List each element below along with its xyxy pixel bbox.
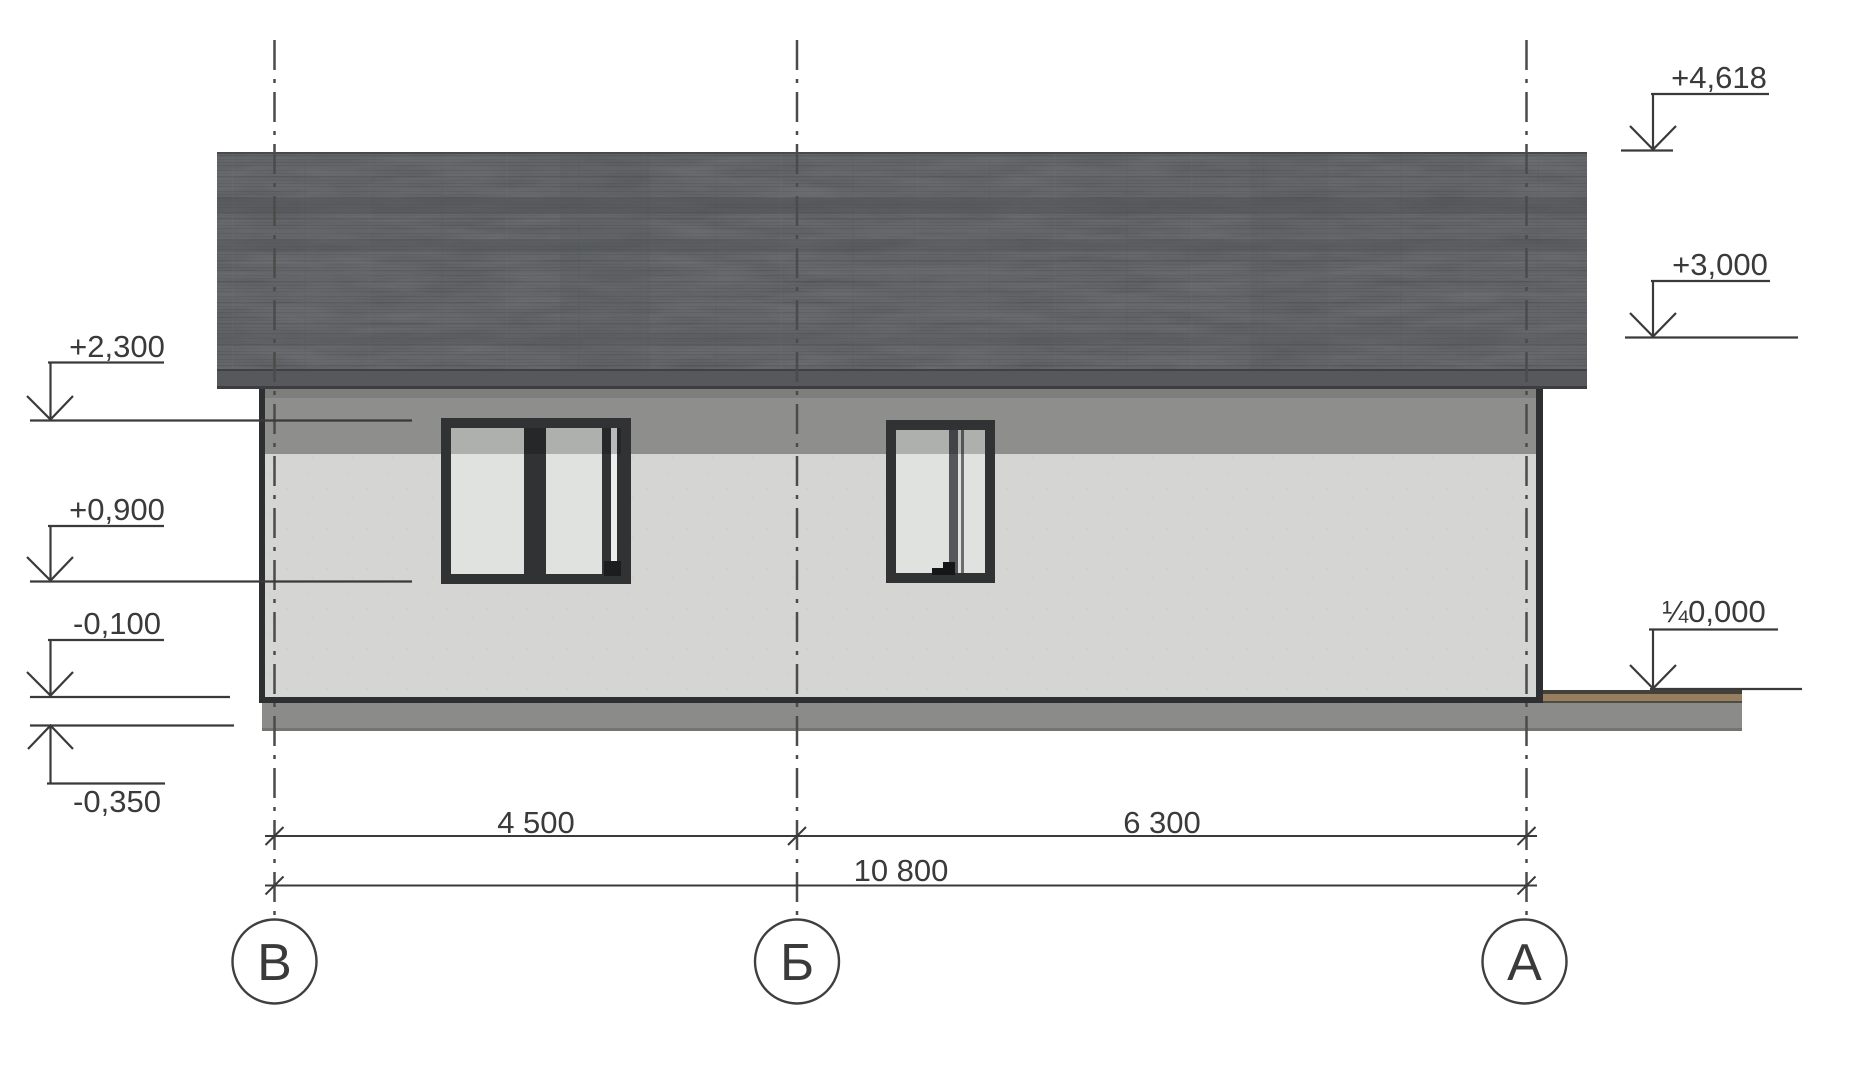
svg-text:+3,000: +3,000 (1672, 247, 1768, 282)
svg-text:-0,100: -0,100 (73, 606, 161, 641)
svg-text:6 300: 6 300 (1123, 805, 1201, 840)
svg-text:¼0,000: ¼0,000 (1662, 594, 1765, 629)
svg-text:А: А (1507, 934, 1542, 992)
svg-text:+4,618: +4,618 (1671, 60, 1767, 95)
svg-text:В: В (257, 934, 292, 992)
svg-text:Б: Б (780, 934, 814, 992)
svg-text:+2,300: +2,300 (69, 329, 165, 364)
svg-text:-0,350: -0,350 (73, 784, 161, 819)
svg-text:4 500: 4 500 (497, 805, 575, 840)
svg-text:+0,900: +0,900 (69, 492, 165, 527)
svg-text:10 800: 10 800 (854, 853, 949, 888)
